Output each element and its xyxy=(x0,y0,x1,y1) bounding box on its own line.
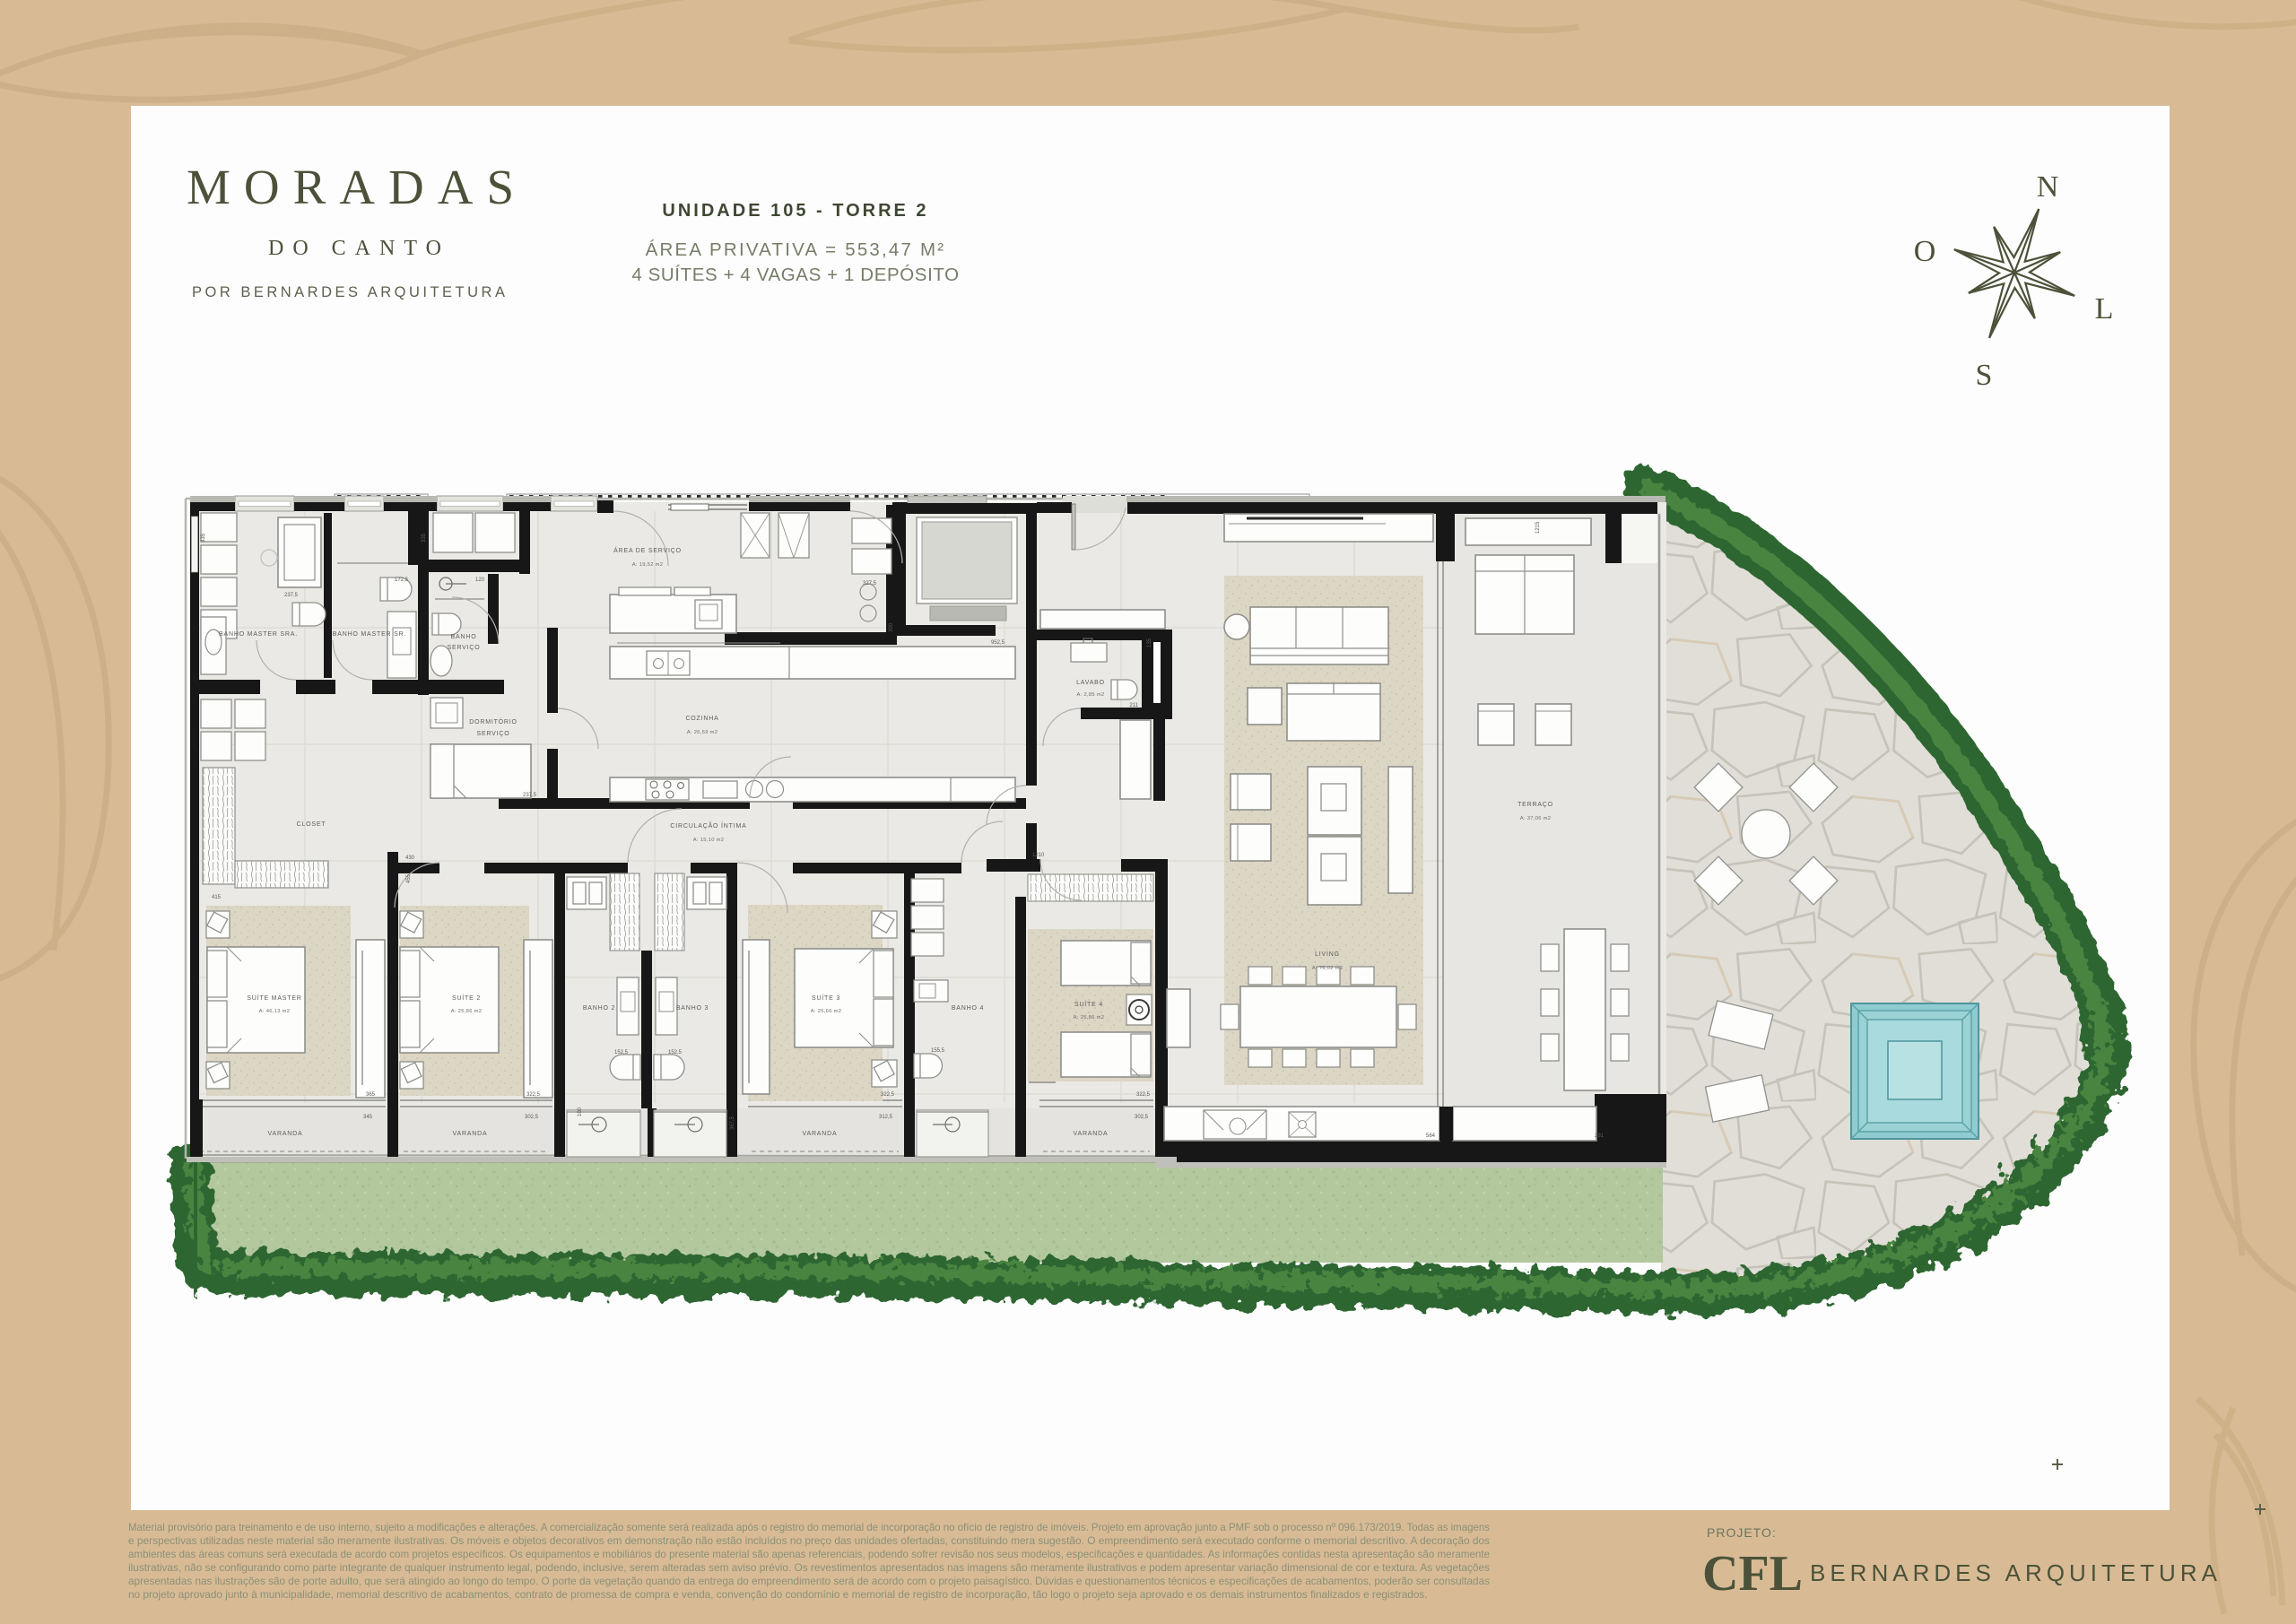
svg-text:952,5: 952,5 xyxy=(991,640,1005,646)
svg-text:SERVIÇO: SERVIÇO xyxy=(477,731,510,737)
svg-text:564: 564 xyxy=(1426,1133,1436,1139)
svg-text:A: 25,86 m2: A: 25,86 m2 xyxy=(1074,1015,1105,1020)
svg-text:455: 455 xyxy=(406,873,412,883)
svg-text:A: 76,02 m2: A: 76,02 m2 xyxy=(1312,966,1344,971)
svg-text:345: 345 xyxy=(363,1115,373,1120)
svg-text:N: N xyxy=(2037,170,2059,204)
svg-text:DORMITÓRIO: DORMITÓRIO xyxy=(469,717,517,725)
svg-text:apresentadas nas ilustrações s: apresentadas nas ilustrações são de port… xyxy=(128,1575,1490,1587)
svg-text:VARANDA: VARANDA xyxy=(803,1131,838,1137)
svg-text:L: L xyxy=(2095,292,2114,326)
svg-text:291: 291 xyxy=(1595,1133,1605,1139)
svg-text:BANHO 2: BANHO 2 xyxy=(583,1005,615,1012)
svg-text:BANHO MASTER SR.: BANHO MASTER SR. xyxy=(333,631,406,638)
svg-text:322,5: 322,5 xyxy=(1136,1092,1151,1098)
svg-text:335: 335 xyxy=(201,533,206,543)
svg-text:e perspectivas utilizadas nest: e perspectivas utilizadas neste material… xyxy=(128,1534,1490,1547)
svg-text:BANHO: BANHO xyxy=(451,634,477,640)
svg-text:A: 15,10 m2: A: 15,10 m2 xyxy=(693,838,725,843)
svg-text:Material provisório para trein: Material provisório para treinamento e d… xyxy=(128,1521,1490,1533)
svg-text:152,5: 152,5 xyxy=(668,1050,683,1055)
svg-text:302,5: 302,5 xyxy=(1135,1115,1149,1120)
svg-text:BANHO 4: BANHO 4 xyxy=(952,1005,984,1012)
svg-text:CLOSET: CLOSET xyxy=(297,821,326,828)
svg-text:415: 415 xyxy=(212,895,222,900)
svg-text:SUÍTE 4: SUÍTE 4 xyxy=(1074,1000,1103,1008)
svg-text:365: 365 xyxy=(366,1092,376,1098)
svg-text:BERNARDES ARQUITETURA: BERNARDES ARQUITETURA xyxy=(1810,1559,2222,1586)
svg-text:CIRCULAÇÃO ÍNTIMA: CIRCULAÇÃO ÍNTIMA xyxy=(670,821,746,829)
svg-text:ambientes das áreas comuns ser: ambientes das áreas comuns será executad… xyxy=(128,1548,1490,1560)
svg-text:PROJETO:: PROJETO: xyxy=(1707,1525,1777,1540)
svg-text:COZINHA: COZINHA xyxy=(685,716,718,722)
svg-text:300: 300 xyxy=(889,622,894,632)
svg-text:322,5: 322,5 xyxy=(526,1092,541,1098)
svg-text:211: 211 xyxy=(1129,703,1138,708)
svg-text:SUÍTE 3: SUÍTE 3 xyxy=(812,994,840,1002)
svg-text:237,5: 237,5 xyxy=(523,793,537,798)
svg-text:335: 335 xyxy=(422,533,427,543)
svg-text:O: O xyxy=(1914,235,1936,268)
svg-text:BANHO MASTER SRA.: BANHO MASTER SRA. xyxy=(219,631,298,638)
svg-text:237,5: 237,5 xyxy=(284,593,299,598)
svg-text:152,5: 152,5 xyxy=(614,1050,629,1055)
svg-text:A: 19,52 m2: A: 19,52 m2 xyxy=(632,562,664,568)
svg-text:DO CANTO: DO CANTO xyxy=(268,237,450,260)
svg-text:ilustrativas, não se configura: ilustrativas, não se configurando como p… xyxy=(128,1561,1490,1574)
svg-text:430: 430 xyxy=(405,855,415,861)
svg-text:TERRAÇO: TERRAÇO xyxy=(1518,802,1553,808)
svg-text:367,5: 367,5 xyxy=(730,1116,735,1130)
svg-text:no projeto aprovado junto à mu: no projeto aprovado junto à municipalida… xyxy=(128,1588,1428,1601)
svg-text:POR BERNARDES ARQUITETURA: POR BERNARDES ARQUITETURA xyxy=(192,284,508,300)
svg-text:A: 25,86 m2: A: 25,86 m2 xyxy=(451,1009,483,1014)
svg-text:LAVABO: LAVABO xyxy=(1076,680,1105,686)
svg-text:ÁREA PRIVATIVA = 553,47 M²: ÁREA PRIVATIVA = 553,47 M² xyxy=(646,239,946,260)
svg-text:1210: 1210 xyxy=(1032,853,1045,858)
svg-text:120: 120 xyxy=(475,578,485,583)
svg-text:1215: 1215 xyxy=(1535,521,1541,534)
svg-text:VARANDA: VARANDA xyxy=(453,1131,488,1137)
svg-text:UNIDADE 105 - TORRE 2: UNIDADE 105 - TORRE 2 xyxy=(662,201,928,221)
svg-text:BANHO 3: BANHO 3 xyxy=(676,1005,709,1012)
svg-text:VARANDA: VARANDA xyxy=(268,1131,303,1137)
svg-text:LIVING: LIVING xyxy=(1315,951,1340,958)
svg-text:172,5: 172,5 xyxy=(395,578,409,583)
svg-text:312,5: 312,5 xyxy=(879,1115,893,1120)
svg-text:A: 46,13 m2: A: 46,13 m2 xyxy=(259,1009,291,1014)
svg-text:A: 37,06 m2: A: 37,06 m2 xyxy=(1520,816,1552,821)
svg-text:CFL: CFL xyxy=(1702,1546,1803,1602)
svg-text:322,5: 322,5 xyxy=(881,1092,895,1098)
svg-text:A: 2,85 m2: A: 2,85 m2 xyxy=(1076,692,1104,698)
svg-text:327,5: 327,5 xyxy=(863,581,877,586)
svg-text:4 SUÍTES + 4 VAGAS + 1 DEPÓSIT: 4 SUÍTES + 4 VAGAS + 1 DEPÓSITO xyxy=(631,265,959,285)
svg-text:SUÍTE MÁSTER: SUÍTE MÁSTER xyxy=(247,994,301,1002)
svg-text:302,5: 302,5 xyxy=(525,1115,539,1120)
svg-text:A: 26,59 m2: A: 26,59 m2 xyxy=(687,730,718,735)
svg-text:SERVIÇO: SERVIÇO xyxy=(448,645,481,651)
svg-text:100: 100 xyxy=(578,1107,583,1116)
svg-text:155,5: 155,5 xyxy=(931,1048,945,1054)
svg-text:135: 135 xyxy=(1147,638,1152,647)
svg-text:A: 25,66 m2: A: 25,66 m2 xyxy=(811,1009,842,1014)
svg-text:ÁREA DE SERVIÇO: ÁREA DE SERVIÇO xyxy=(613,546,682,554)
svg-text:MORADAS: MORADAS xyxy=(187,160,527,214)
svg-text:S: S xyxy=(1976,359,1993,392)
svg-text:SUÍTE 2: SUÍTE 2 xyxy=(452,994,481,1002)
svg-text:VARANDA: VARANDA xyxy=(1074,1131,1109,1137)
